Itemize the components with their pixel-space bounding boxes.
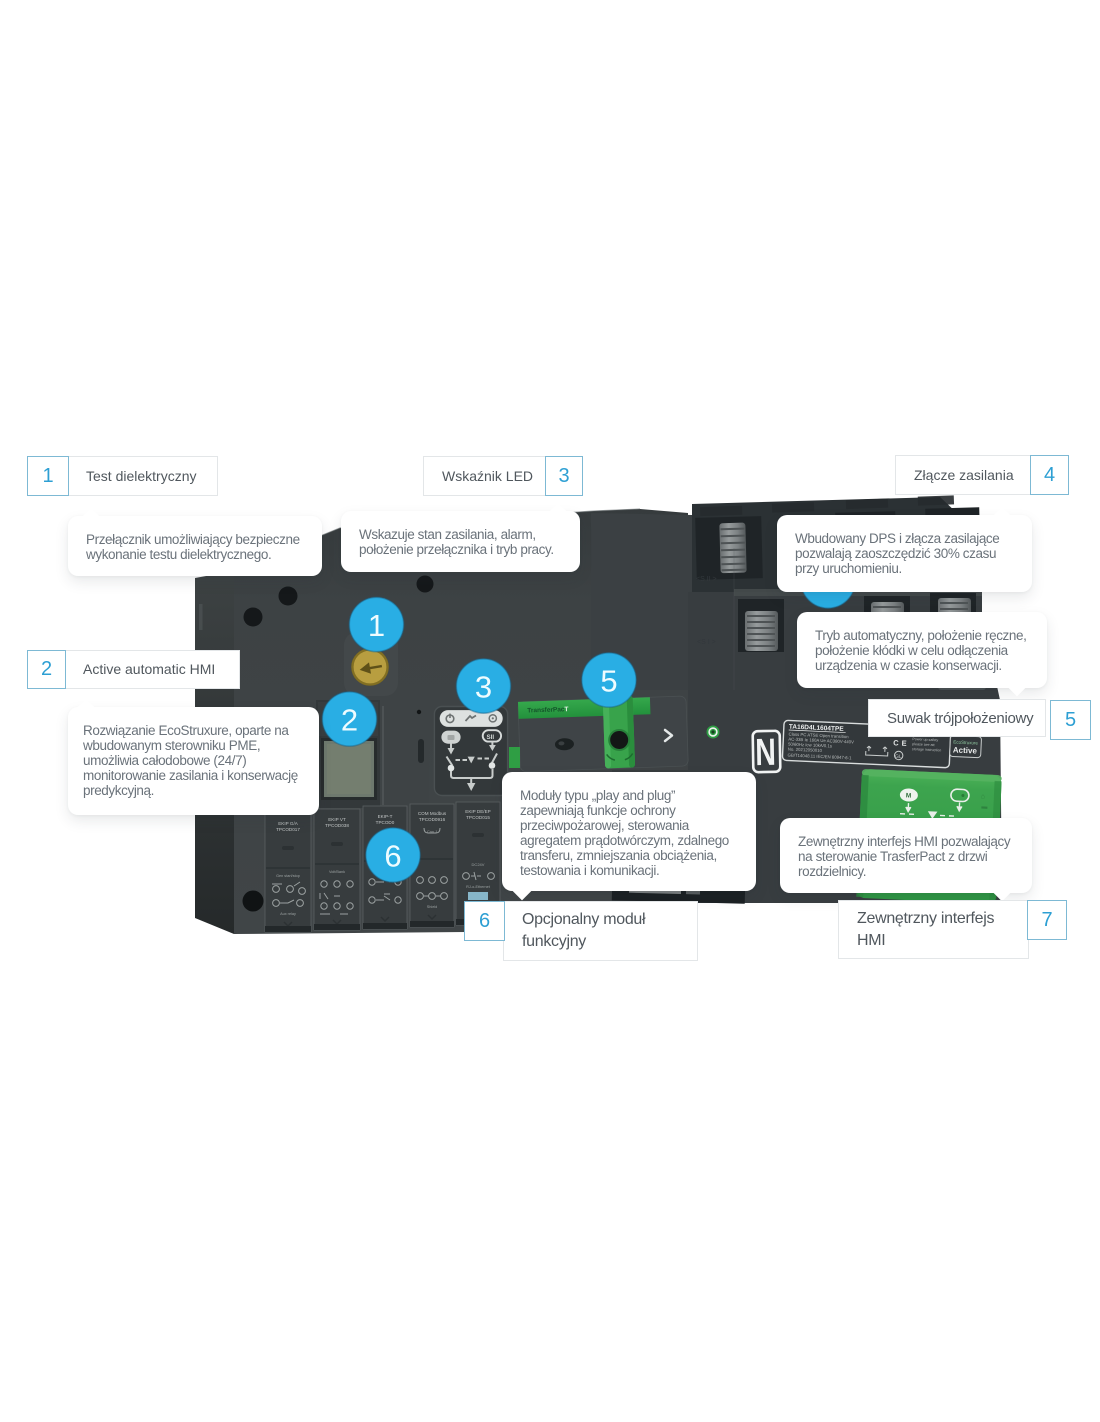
svg-text:GL: GL	[895, 754, 902, 760]
svg-text:TransferPacT: TransferPacT	[527, 706, 568, 714]
svg-text:2: 2	[341, 703, 358, 738]
svg-text:Shield: Shield	[427, 905, 438, 909]
svg-text:C ​E: C ​E	[893, 738, 907, 748]
svg-text:EKIP DE/EP: EKIP DE/EP	[465, 809, 490, 814]
svg-text:Aux relay: Aux relay	[280, 912, 296, 916]
svg-text:Gen start/stop: Gen start/stop	[276, 874, 300, 878]
svg-text:3: 3	[475, 670, 492, 705]
svg-text:TPCOD015: TPCOD015	[466, 815, 490, 820]
svg-text:EKIP-T: EKIP-T	[378, 814, 393, 819]
svg-text:6: 6	[384, 839, 401, 874]
svg-text:⌂: ⌂	[981, 793, 986, 800]
svg-text:5: 5	[600, 664, 617, 699]
svg-text:1: 1	[368, 608, 385, 643]
svg-text:EKIP G/A: EKIP G/A	[278, 821, 299, 826]
svg-text:M: M	[906, 792, 912, 799]
svg-text:SII: SII	[487, 734, 495, 741]
svg-text:COM Modbus: COM Modbus	[418, 811, 447, 816]
svg-text:TPCOD038: TPCOD038	[325, 823, 349, 828]
svg-text:Volt/Bank: Volt/Bank	[329, 870, 345, 874]
svg-text:TPCOD017: TPCOD017	[276, 827, 300, 832]
svg-text:EKIP VT: EKIP VT	[328, 817, 346, 822]
svg-text:<S II >: <S II >	[696, 576, 717, 583]
svg-text:TPCOD0916: TPCOD0916	[419, 817, 446, 822]
svg-text:Active: Active	[953, 745, 978, 755]
svg-text:N: N	[755, 732, 776, 774]
svg-text:DC24V: DC24V	[472, 862, 485, 867]
svg-text:RJ-o-Ethernet: RJ-o-Ethernet	[466, 885, 491, 889]
svg-text:TPCOD0: TPCOD0	[376, 820, 395, 825]
svg-text:<S I >: <S I >	[697, 639, 716, 646]
svg-text:Can J: Can J	[427, 830, 437, 834]
